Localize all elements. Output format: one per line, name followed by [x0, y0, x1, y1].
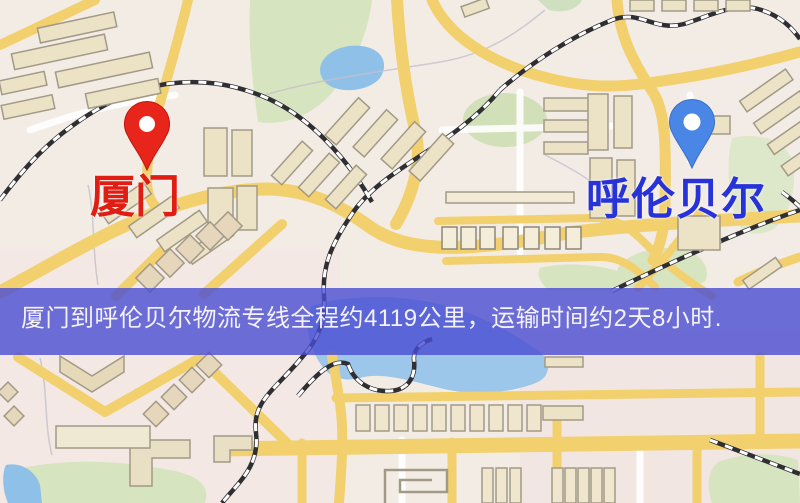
route-info-text: 厦门到呼伦贝尔物流专线全程约4119公里，运输时间约2天8小时.: [21, 298, 722, 333]
logistics-route-map-image: 厦门 呼伦贝尔 厦门到呼伦贝尔物流专线全程约4119公里，运输时间约2天8小时.: [0, 0, 800, 503]
destination-label: 呼伦贝尔: [586, 177, 766, 223]
route-info-banner: 厦门到呼伦贝尔物流专线全程约4119公里，运输时间约2天8小时.: [0, 288, 800, 355]
map: [0, 0, 800, 503]
origin-label: 厦门: [90, 173, 180, 220]
